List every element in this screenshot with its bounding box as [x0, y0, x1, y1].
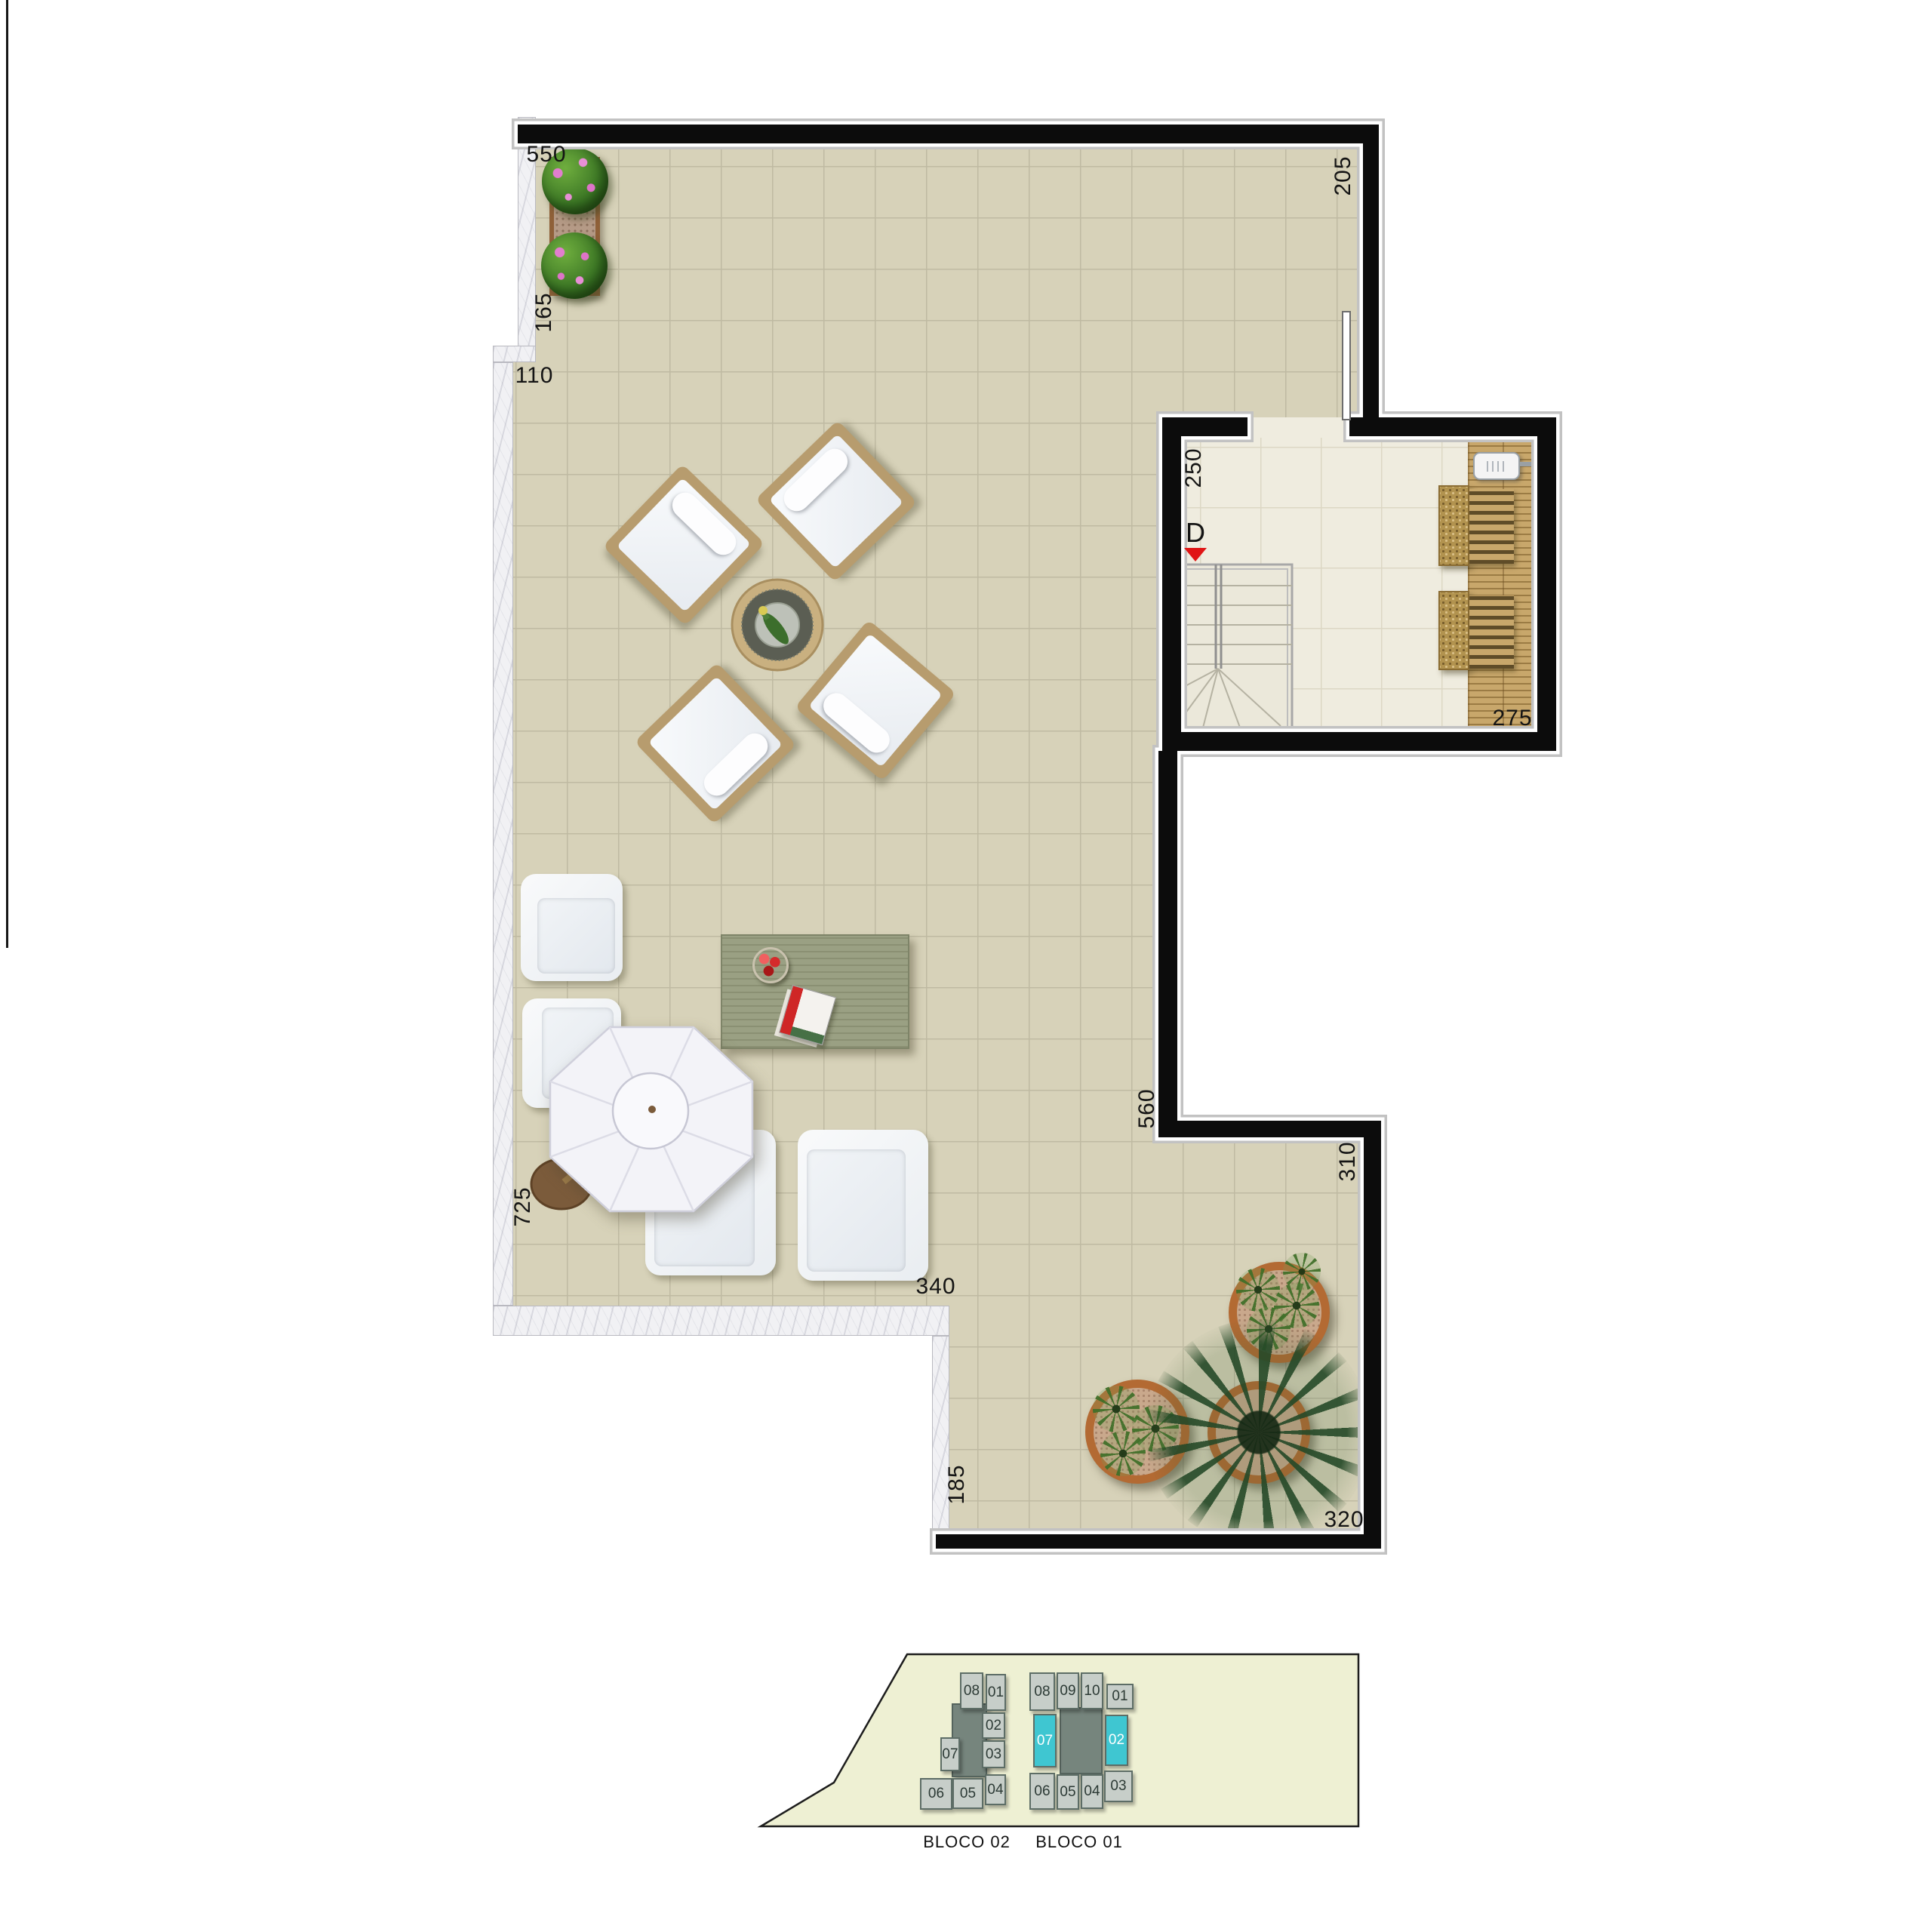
site-unit-08: 08: [1029, 1672, 1055, 1711]
block-label: BLOCO 02: [923, 1832, 1011, 1852]
site-unit-01: 01: [986, 1674, 1006, 1711]
site-unit-04: 04: [1081, 1774, 1103, 1809]
site-unit-06: 06: [920, 1778, 952, 1810]
site-unit-10: 10: [1081, 1672, 1103, 1709]
site-unit-08: 08: [960, 1672, 983, 1709]
site-parcel: [0, 0, 1932, 1932]
site-unit-07: 07: [1033, 1714, 1057, 1767]
block-label: BLOCO 01: [1035, 1832, 1123, 1852]
site-unit-01: 01: [1106, 1684, 1134, 1709]
floor-plan-page: D 550205110165250275560310725340185320 0…: [0, 0, 1932, 1932]
site-unit-04: 04: [985, 1774, 1006, 1805]
site-unit-09: 09: [1057, 1672, 1079, 1709]
building-core: [1060, 1707, 1103, 1774]
site-unit-02: 02: [982, 1712, 1005, 1739]
site-unit-03: 03: [982, 1740, 1005, 1768]
site-unit-05: 05: [952, 1778, 983, 1809]
site-unit-05: 05: [1057, 1774, 1079, 1810]
site-unit-07: 07: [940, 1737, 960, 1771]
site-unit-02: 02: [1105, 1715, 1128, 1766]
site-unit-03: 03: [1104, 1770, 1133, 1802]
site-unit-06: 06: [1029, 1773, 1055, 1810]
